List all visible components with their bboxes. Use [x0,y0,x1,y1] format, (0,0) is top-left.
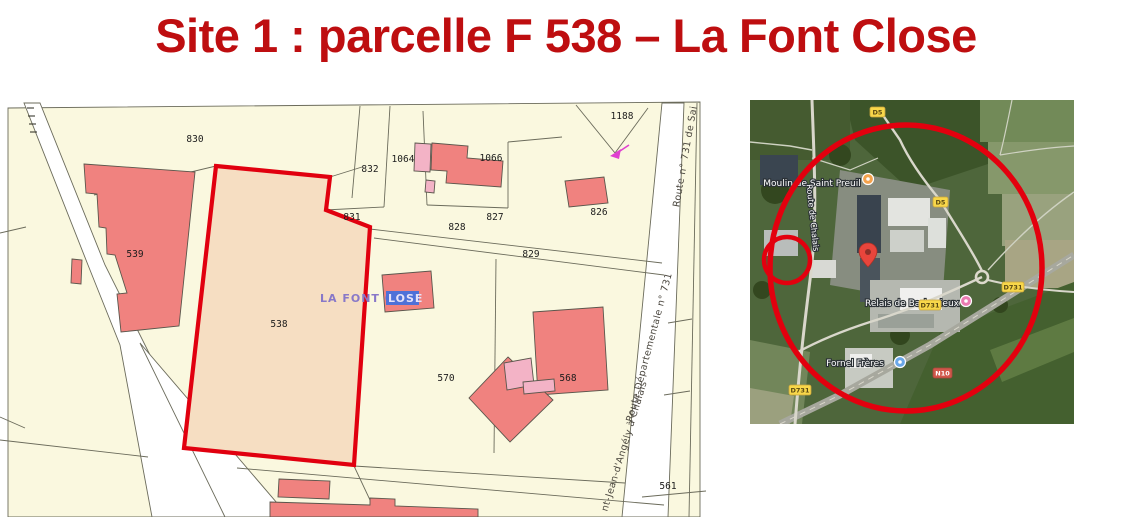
parcel-label-568: 568 [559,373,576,384]
locality-label-part1: LA FONT C [320,292,394,305]
parcel-label-1188: 1188 [611,111,634,122]
parcel-label-832: 832 [361,164,378,175]
badge-n10: N10 [933,368,952,378]
badge-d5-top: D5 [870,107,885,117]
svg-text:D5: D5 [873,109,883,117]
badge-d5-mid: D5 [933,197,948,207]
parcel-label-828: 828 [448,222,465,233]
place-label-relais: Relais de Barbezieux [865,299,960,309]
locality-label: LA FONT C LOSE [320,291,423,305]
place-label-fornel: Fornel Frères [826,358,884,369]
parcel-label-831: 831 [343,212,360,223]
badge-d731-mid: D731 [919,300,941,310]
svg-text:N10: N10 [935,370,950,378]
page-title: Site 1 : parcelle F 538 – La Font Close [0,0,1132,72]
satellite-map: Moulin de Saint Preuil Relais de Barbezi… [750,100,1074,424]
svg-text:D731: D731 [791,387,810,395]
locality-label-part2: LOSE [388,292,423,305]
svg-text:D5: D5 [936,199,946,207]
svg-text:D731: D731 [1004,284,1023,292]
poi-blue-icon [895,357,906,368]
parcel-label-561: 561 [659,481,676,492]
parcel-label-539: 539 [126,249,143,260]
parcel-label-570: 570 [437,373,454,384]
parcel-label-827: 827 [486,212,503,223]
parcel-label-1066: 1066 [480,153,503,164]
badge-d731-left: D731 [789,385,811,395]
parcel-label-830: 830 [186,134,203,145]
poi-pink-icon [961,296,972,307]
cadastral-map: 830 832 1064 1066 1188 827 828 829 826 8… [0,95,710,517]
parcel-label-538: 538 [270,319,287,330]
poi-orange-icon [863,174,874,185]
svg-text:D731: D731 [921,302,940,310]
parcel-label-826: 826 [590,207,607,218]
parcel-label-829: 829 [522,249,539,260]
badge-d731-right: D731 [1002,282,1024,292]
parcel-label-1064: 1064 [392,154,415,165]
